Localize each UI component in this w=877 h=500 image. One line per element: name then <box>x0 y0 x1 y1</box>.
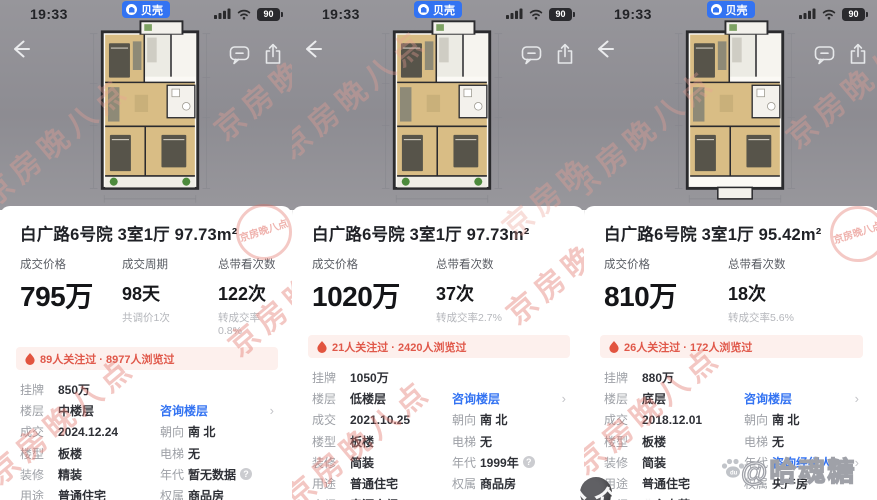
chevron-right-icon: › <box>562 391 566 406</box>
consult-agent-link[interactable]: 咨询经纪人 <box>772 454 832 471</box>
row-listing-price: 挂牌 1050万 <box>312 367 570 388</box>
listing-card: 白广路6号院 3室1厅 97.73m² 成交价格 1020万 总带看次数 37次… <box>292 206 584 500</box>
floorplan-gallery[interactable]: 19:33 90 贝壳 京房晚八点 京房晚八点 <box>0 0 292 210</box>
row-usage: 用途 普通住宅 权属 商品房 <box>312 473 570 494</box>
share-icon[interactable] <box>555 43 575 65</box>
deal-price-value: 810万 <box>604 275 728 315</box>
beike-app-badge[interactable]: 贝壳 <box>707 1 755 18</box>
listing-panel-2: 19:33 90 贝壳 京房晚八点 京房晚八点 白广路6号院 3室1厅 97.7… <box>292 0 584 500</box>
clock: 19:33 <box>30 6 68 22</box>
back-icon[interactable] <box>594 38 617 60</box>
deal-stats: 成交价格 1020万 总带看次数 37次 转成交率2.7% <box>312 256 570 325</box>
watermark-text: 京房晚八点 <box>203 0 292 149</box>
share-icon[interactable] <box>263 43 283 65</box>
stat-deal-price: 成交价格 810万 <box>604 256 728 325</box>
floorplan-gallery[interactable]: 19:33 90 贝壳 京房晚八点 京房晚八点 <box>292 0 584 210</box>
question-mark-icon[interactable]: ? <box>523 456 535 468</box>
cell-signal-icon <box>506 8 523 20</box>
floorplan-image[interactable] <box>87 18 213 206</box>
listing-panel-3: 19:33 90 贝壳 京房晚八点 京房晚八点 白广路6号院 3室1厅 95.4… <box>584 0 877 500</box>
wifi-icon <box>236 8 252 20</box>
floorplan-gallery[interactable]: 19:33 90 贝壳 京房晚八点 京房晚八点 <box>584 0 877 210</box>
clock: 19:33 <box>322 6 360 22</box>
row-building-type: 楼型 板楼 电梯 无 <box>312 431 570 452</box>
stat-deal-cycle: 成交周期 98天 共调价1次 <box>122 256 218 337</box>
hot-flame-icon <box>609 341 619 353</box>
stat-deal-price: 成交价格 1020万 <box>312 256 436 325</box>
listing-panel-1: 19:33 90 贝壳 京房晚八点 京房晚八点 白广路6号院 3室1厅 97.7… <box>0 0 292 500</box>
beike-badge-label: 贝壳 <box>141 2 163 18</box>
row-deal-date: 成交 2024.12.24 朝向 南 北 <box>20 421 278 442</box>
beike-badge-label: 贝壳 <box>433 2 455 18</box>
battery-icon: 90 <box>257 8 280 21</box>
chevron-right-icon: › <box>855 455 859 470</box>
listing-card: 白广路6号院 3室1厅 95.42m² 成交价格 810万 总带看次数 18次 … <box>584 206 877 500</box>
battery-icon: 90 <box>549 8 572 21</box>
listing-title: 白广路6号院 3室1厅 97.73m² <box>20 221 278 245</box>
stat-deal-price: 成交价格 795万 <box>20 256 122 337</box>
beike-logo-icon <box>418 4 429 15</box>
share-icon[interactable] <box>848 43 868 65</box>
detail-rows: 挂牌 880万 楼层 底层 咨询楼层 › 成交 2018.12.01 朝向 南 … <box>604 367 863 500</box>
deal-price-value: 795万 <box>20 275 122 315</box>
wifi-icon <box>528 8 544 20</box>
detail-rows: 挂牌 1050万 楼层 低楼层 咨询楼层 › 成交 2021.10.25 朝向 … <box>312 367 570 500</box>
row-building-type: 楼型 板楼 电梯 无 <box>20 443 278 464</box>
wifi-icon <box>821 8 837 20</box>
beike-logo-icon <box>711 4 722 15</box>
listing-title: 白广路6号院 3室1厅 97.73m² <box>312 221 570 245</box>
back-icon[interactable] <box>302 38 325 60</box>
row-usage: 用途 普通住宅 权属 商品房 <box>20 485 278 500</box>
hot-flame-icon <box>317 341 327 353</box>
stat-showings: 总带看次数 37次 转成交率2.7% <box>436 256 502 325</box>
floorplan-image[interactable] <box>379 18 505 206</box>
popularity-banner: 26人关注过 · 172人浏览过 <box>600 335 863 358</box>
row-usage: 用途 普通住宅 权属 央产房 <box>604 473 863 494</box>
cell-signal-icon <box>799 8 816 20</box>
consult-floor-link[interactable]: 咨询楼层 <box>160 402 208 419</box>
row-decoration[interactable]: 装修 简装 年代 咨询经纪人 › <box>604 452 863 473</box>
deal-stats: 成交价格 795万 成交周期 98天 共调价1次 总带看次数 122次 转成交率… <box>20 256 278 337</box>
chevron-right-icon: › <box>855 391 859 406</box>
beike-logo-icon <box>126 4 137 15</box>
deal-price-value: 1020万 <box>312 275 436 315</box>
listing-title: 白广路6号院 3室1厅 95.42m² <box>604 221 863 245</box>
row-deal-date: 成交 2018.12.01 朝向 南 北 <box>604 409 863 430</box>
back-icon[interactable] <box>10 38 33 60</box>
stat-showings: 总带看次数 122次 转成交率0.8% <box>218 256 278 337</box>
row-intro[interactable]: 介绍 业主自荐 › <box>604 494 863 500</box>
hot-flame-icon <box>25 353 35 365</box>
row-floor[interactable]: 楼层 低楼层 咨询楼层 › <box>312 388 570 409</box>
row-listing-price: 挂牌 850万 <box>20 379 278 400</box>
chat-bubble-icon[interactable] <box>521 45 542 65</box>
detail-rows: 挂牌 850万 楼层 中楼层 咨询楼层 › 成交 2024.12.24 朝向 南… <box>20 379 278 500</box>
row-deal-date: 成交 2021.10.25 朝向 南 北 <box>312 409 570 430</box>
popularity-banner: 21人关注过 · 2420人浏览过 <box>308 335 570 358</box>
consult-floor-link[interactable]: 咨询楼层 <box>744 390 792 407</box>
clock: 19:33 <box>614 6 652 22</box>
consult-floor-link[interactable]: 咨询楼层 <box>452 390 500 407</box>
row-floor[interactable]: 楼层 中楼层 咨询楼层 › <box>20 400 278 421</box>
beike-app-badge[interactable]: 贝壳 <box>414 1 462 18</box>
battery-icon: 90 <box>842 8 865 21</box>
beike-app-badge[interactable]: 贝壳 <box>122 1 170 18</box>
side-by-side-screenshots: 19:33 90 贝壳 京房晚八点 京房晚八点 白广路6号院 3室1厅 97.7… <box>0 0 877 500</box>
floorplan-image[interactable] <box>672 18 798 206</box>
row-listing-price: 挂牌 880万 <box>604 367 863 388</box>
chat-bubble-icon[interactable] <box>229 45 250 65</box>
beike-badge-label: 贝壳 <box>726 2 748 18</box>
row-building-type: 楼型 板楼 电梯 无 <box>604 431 863 452</box>
popularity-banner: 89人关注过 · 8977人浏览过 <box>16 347 278 370</box>
chat-bubble-icon[interactable] <box>814 45 835 65</box>
chevron-right-icon: › <box>270 403 274 418</box>
row-floor[interactable]: 楼层 底层 咨询楼层 › <box>604 388 863 409</box>
row-decoration: 装修 简装 年代 1999年? <box>312 452 570 473</box>
stat-showings: 总带看次数 18次 转成交率5.6% <box>728 256 794 325</box>
row-intro[interactable]: 介绍 房源介绍 › <box>312 494 570 500</box>
listing-card: 白广路6号院 3室1厅 97.73m² 成交价格 795万 成交周期 98天 共… <box>0 206 292 500</box>
row-decoration: 装修 精装 年代 暂无数据? <box>20 464 278 485</box>
cell-signal-icon <box>214 8 231 20</box>
question-mark-icon[interactable]: ? <box>240 468 252 480</box>
deal-stats: 成交价格 810万 总带看次数 18次 转成交率5.6% <box>604 256 863 325</box>
